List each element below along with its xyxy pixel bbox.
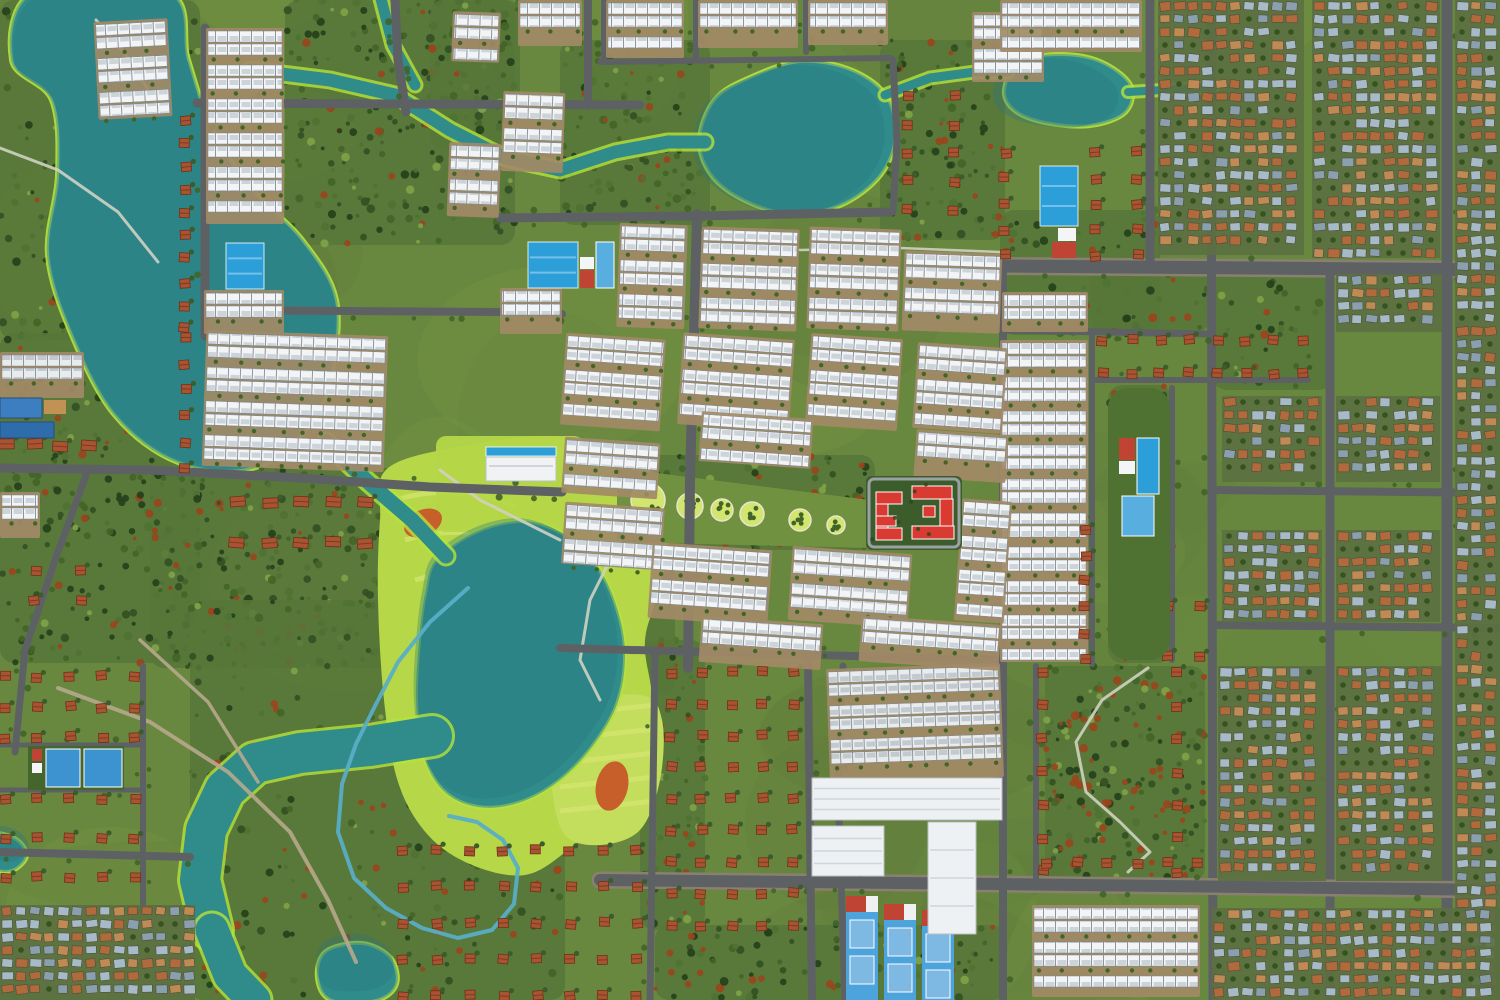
tree [1091,837,1098,844]
villa [1,671,11,680]
tree [1342,950,1348,956]
city-house [1286,80,1296,88]
city-house [1266,450,1276,458]
city-house [1314,145,1325,152]
tree [349,168,354,173]
villa-ridge [727,894,737,895]
city-house [1480,974,1492,983]
city-house [1384,15,1394,23]
tree [407,989,412,994]
city-house [1230,106,1240,115]
city-house [1354,962,1365,969]
city-house [1394,597,1406,606]
tree [1306,354,1311,359]
city-house [1220,850,1230,858]
tree [1148,727,1152,731]
city-house [1342,54,1354,63]
city-house [1471,587,1481,595]
tree [735,790,740,795]
tree [646,103,654,111]
villa-ridge [33,706,43,707]
tree [1078,369,1082,373]
tree [106,528,113,535]
tree [408,880,413,885]
city-house [1248,694,1260,703]
city-house [1202,144,1214,153]
city-house [1174,223,1184,230]
tree [372,905,378,911]
rowhouse-strip [1002,547,1086,558]
street-tree [1007,869,1012,874]
tree [1258,911,1264,917]
tree [574,988,579,993]
villa-ridge [1240,341,1250,342]
tree [1330,211,1336,217]
tree [291,668,298,675]
tree [695,498,700,503]
tree [1089,758,1094,763]
city-house [1408,301,1419,310]
tree [738,821,743,826]
city-house [1216,223,1228,231]
villa [597,955,607,964]
city-house [1380,668,1390,678]
se-city-s [1212,908,1500,1000]
tree [1127,934,1131,938]
city-house [1238,571,1249,579]
tree [1135,702,1139,706]
tree [642,915,647,920]
tree [1344,29,1350,35]
tree [799,697,804,702]
tree [563,62,568,67]
villa [725,793,736,803]
city-house [1356,2,1369,11]
tree [1095,810,1104,819]
city-house [1457,600,1467,608]
city-house [1383,66,1395,76]
tree [766,696,771,701]
tree [1316,68,1322,74]
tree [1382,825,1388,831]
city-house [1188,158,1198,167]
city-house [1457,41,1469,50]
city-house [1396,923,1406,932]
city-house [1290,694,1300,702]
city-house [1356,106,1367,114]
tree [936,65,940,69]
city-house [1304,707,1316,715]
tree [472,942,477,947]
city-house [1174,106,1183,115]
city-house [1214,936,1225,944]
tree [278,319,282,323]
tree [685,189,691,195]
tree [948,103,957,112]
city-house [1308,557,1321,567]
city-house [1408,437,1418,445]
city-house [1234,668,1246,676]
street-tree [449,316,454,321]
city-house [1384,93,1396,100]
tree [314,61,318,65]
tree [369,805,375,811]
villa [789,700,800,710]
tree [1193,743,1200,750]
tree [1354,399,1360,405]
tree [1487,159,1493,165]
tree [314,201,322,209]
city-house [1394,772,1405,780]
city-house [1380,681,1390,688]
tree [1230,924,1236,930]
tree [117,656,121,660]
tree [716,926,722,932]
street-tree [194,271,200,277]
tree [346,121,350,125]
city-house [1294,463,1304,472]
street-tree [20,730,26,736]
tree [1100,248,1105,253]
city-house [1466,909,1476,918]
city-house [1466,923,1478,932]
tree [22,244,30,252]
city-house [1422,463,1432,471]
city-house [1339,935,1351,945]
villa-ridge [1172,873,1182,874]
city-house [1384,236,1394,245]
tree [99,585,105,591]
street-tree [897,61,902,65]
tree [1330,185,1336,191]
tree [1008,223,1013,228]
tree [664,156,671,163]
tree [105,441,109,445]
city-house [1425,1,1437,11]
villa [787,762,797,771]
tree [188,604,195,611]
villa-ridge [757,734,767,735]
villa [698,730,708,739]
tree [878,932,884,938]
tree [261,193,265,197]
city-house [1356,210,1367,218]
tree [1473,874,1479,880]
street-tree [641,945,647,951]
tree [216,319,220,323]
villa [665,732,675,741]
city-house [1314,132,1326,142]
tree [381,921,386,926]
tree [679,29,683,33]
tree [1053,848,1059,854]
tree [335,486,340,491]
tree [137,491,144,498]
villa [180,185,190,194]
tree [105,475,112,482]
tree [1295,305,1301,311]
street-tree [1205,337,1212,344]
tree [677,917,682,922]
tree [299,86,305,92]
tree [58,516,62,520]
city-house [1342,197,1354,206]
city-house [1485,223,1497,230]
rowhouse-strip [208,201,282,212]
street-tree [35,473,41,479]
tree [663,29,667,33]
garden-circle [740,502,764,526]
tree [1400,250,1406,256]
city-house [1408,759,1420,768]
city-house [1326,910,1336,918]
city-house [1452,923,1461,931]
tree [604,82,609,87]
tree [357,865,362,870]
street-tree [857,218,862,223]
city-house [1284,936,1296,945]
c-grid-a [560,333,666,432]
city-house [1286,145,1297,153]
tree [474,877,479,882]
tree [738,729,743,734]
tree [1172,598,1177,603]
tc-rows-a [501,91,566,173]
tree [17,125,22,130]
villa-ridge [695,799,705,800]
tree [960,87,965,92]
city-house [1366,302,1376,309]
tree [304,564,310,570]
city-house [1338,733,1349,742]
tree [177,575,184,582]
city-house [1380,849,1391,859]
tc-rows-b [518,0,582,46]
tree [181,591,188,598]
villa [1091,200,1101,209]
tree [1146,733,1155,742]
city-house [1408,423,1420,432]
tree [239,642,243,646]
city-house [1457,93,1468,102]
tree [1202,292,1207,297]
city-house [1398,106,1410,115]
street-tree [885,73,890,78]
villa-ridge [180,213,190,214]
tree [1145,671,1153,679]
tree [443,34,447,38]
villa-ridge [728,926,738,927]
tree [1459,29,1465,35]
street-tree [771,888,776,893]
tree [476,120,482,126]
tree [574,951,579,956]
tree [676,757,680,761]
tree [701,774,708,781]
tree [302,39,310,47]
ave-ne [1000,266,1500,270]
villa [695,922,705,931]
villa-ridge [599,886,609,887]
rowhouse-strip [453,48,497,61]
tree [237,586,245,594]
tree [9,521,13,525]
street-tree [621,95,626,100]
tree [1161,384,1167,390]
villa [948,148,958,157]
city-house [1234,811,1244,819]
villa-ridge [697,672,707,673]
tree [1111,855,1116,860]
tree [219,550,224,555]
rowhouse-strip [208,99,282,110]
tree [1382,277,1388,283]
city-house [1230,197,1242,206]
tree [1372,81,1378,87]
tree [103,445,108,450]
tree [919,149,924,154]
tree [365,602,371,608]
tree [974,169,978,173]
tree [441,877,446,882]
tree [270,556,275,561]
tree [766,918,771,923]
tree [1272,963,1278,969]
tree [96,437,101,442]
tree [300,992,306,998]
city-house [1342,144,1353,152]
tree [799,517,804,522]
city-house [1252,450,1263,457]
city-house [1384,197,1395,205]
tree [1130,968,1134,972]
tree [1066,719,1071,724]
tree [1268,326,1275,333]
villa [465,990,475,999]
street-tree [385,18,392,25]
city-house [1485,678,1497,686]
tree [1189,867,1194,872]
city-house [1471,768,1483,778]
villa [759,858,769,867]
city-house [1366,610,1376,619]
villa [497,847,507,857]
tree [1080,321,1084,325]
tree [1354,695,1360,701]
city-house [1485,574,1496,582]
city-house [1244,119,1256,127]
tree [332,585,337,590]
tree [281,159,285,163]
tree [833,519,838,524]
street-tree [53,459,58,464]
tree [1459,653,1465,659]
tree [1176,211,1182,217]
city-house [1284,962,1295,972]
tree [1396,533,1402,539]
city-house [1480,949,1492,957]
tree [1026,641,1030,645]
tree [298,531,302,535]
tree [663,170,669,176]
tree [360,553,368,561]
tree [984,94,991,101]
city-house [1244,93,1255,102]
tree [1186,744,1190,748]
street-tree [195,187,201,193]
tree [190,182,195,187]
street-tree [899,111,905,117]
tree [245,493,250,498]
city-house [1396,962,1408,970]
city-house [1280,597,1290,605]
tree [1048,797,1053,802]
tree [15,618,20,623]
tree [245,482,251,488]
tree [347,525,355,533]
tree [771,926,779,934]
tree [1048,283,1056,291]
tree [1236,721,1242,727]
tree [1240,438,1246,444]
tree [330,224,335,229]
city-house [1366,276,1377,285]
city-house [1356,132,1368,140]
city-house [1280,584,1291,592]
street-tree [809,45,816,52]
villa [1128,335,1138,344]
tree [340,8,348,16]
tree [29,657,33,661]
city-house [1234,785,1243,793]
villa-ridge [77,600,87,601]
tree [370,830,374,834]
tree [367,134,374,141]
tree [379,52,384,57]
city-house [1304,746,1314,755]
villa [96,703,107,713]
city-house [1384,106,1395,114]
c-grid-k [954,498,1012,623]
city-house [1366,849,1377,857]
tree [665,201,671,207]
tree [680,182,685,187]
city-house [1422,411,1433,420]
city-house [1294,545,1306,553]
city-house [1258,184,1270,192]
tree [191,18,198,25]
tree [1140,777,1144,781]
tree [55,581,63,589]
city-house [1352,810,1364,819]
tc-rows-g [500,288,562,334]
villa [788,794,799,804]
tree [1330,133,1336,139]
tree [332,193,338,199]
tree [58,644,63,649]
city-house [1244,41,1254,49]
tree [929,186,933,190]
city-house [1394,557,1406,567]
city-house [1471,470,1481,479]
villa-ridge [180,283,190,284]
street-tree [1293,383,1299,389]
city-house [1230,54,1240,63]
tree [1097,686,1103,692]
tree [145,634,153,642]
tree [1372,159,1378,165]
villa [530,845,540,854]
